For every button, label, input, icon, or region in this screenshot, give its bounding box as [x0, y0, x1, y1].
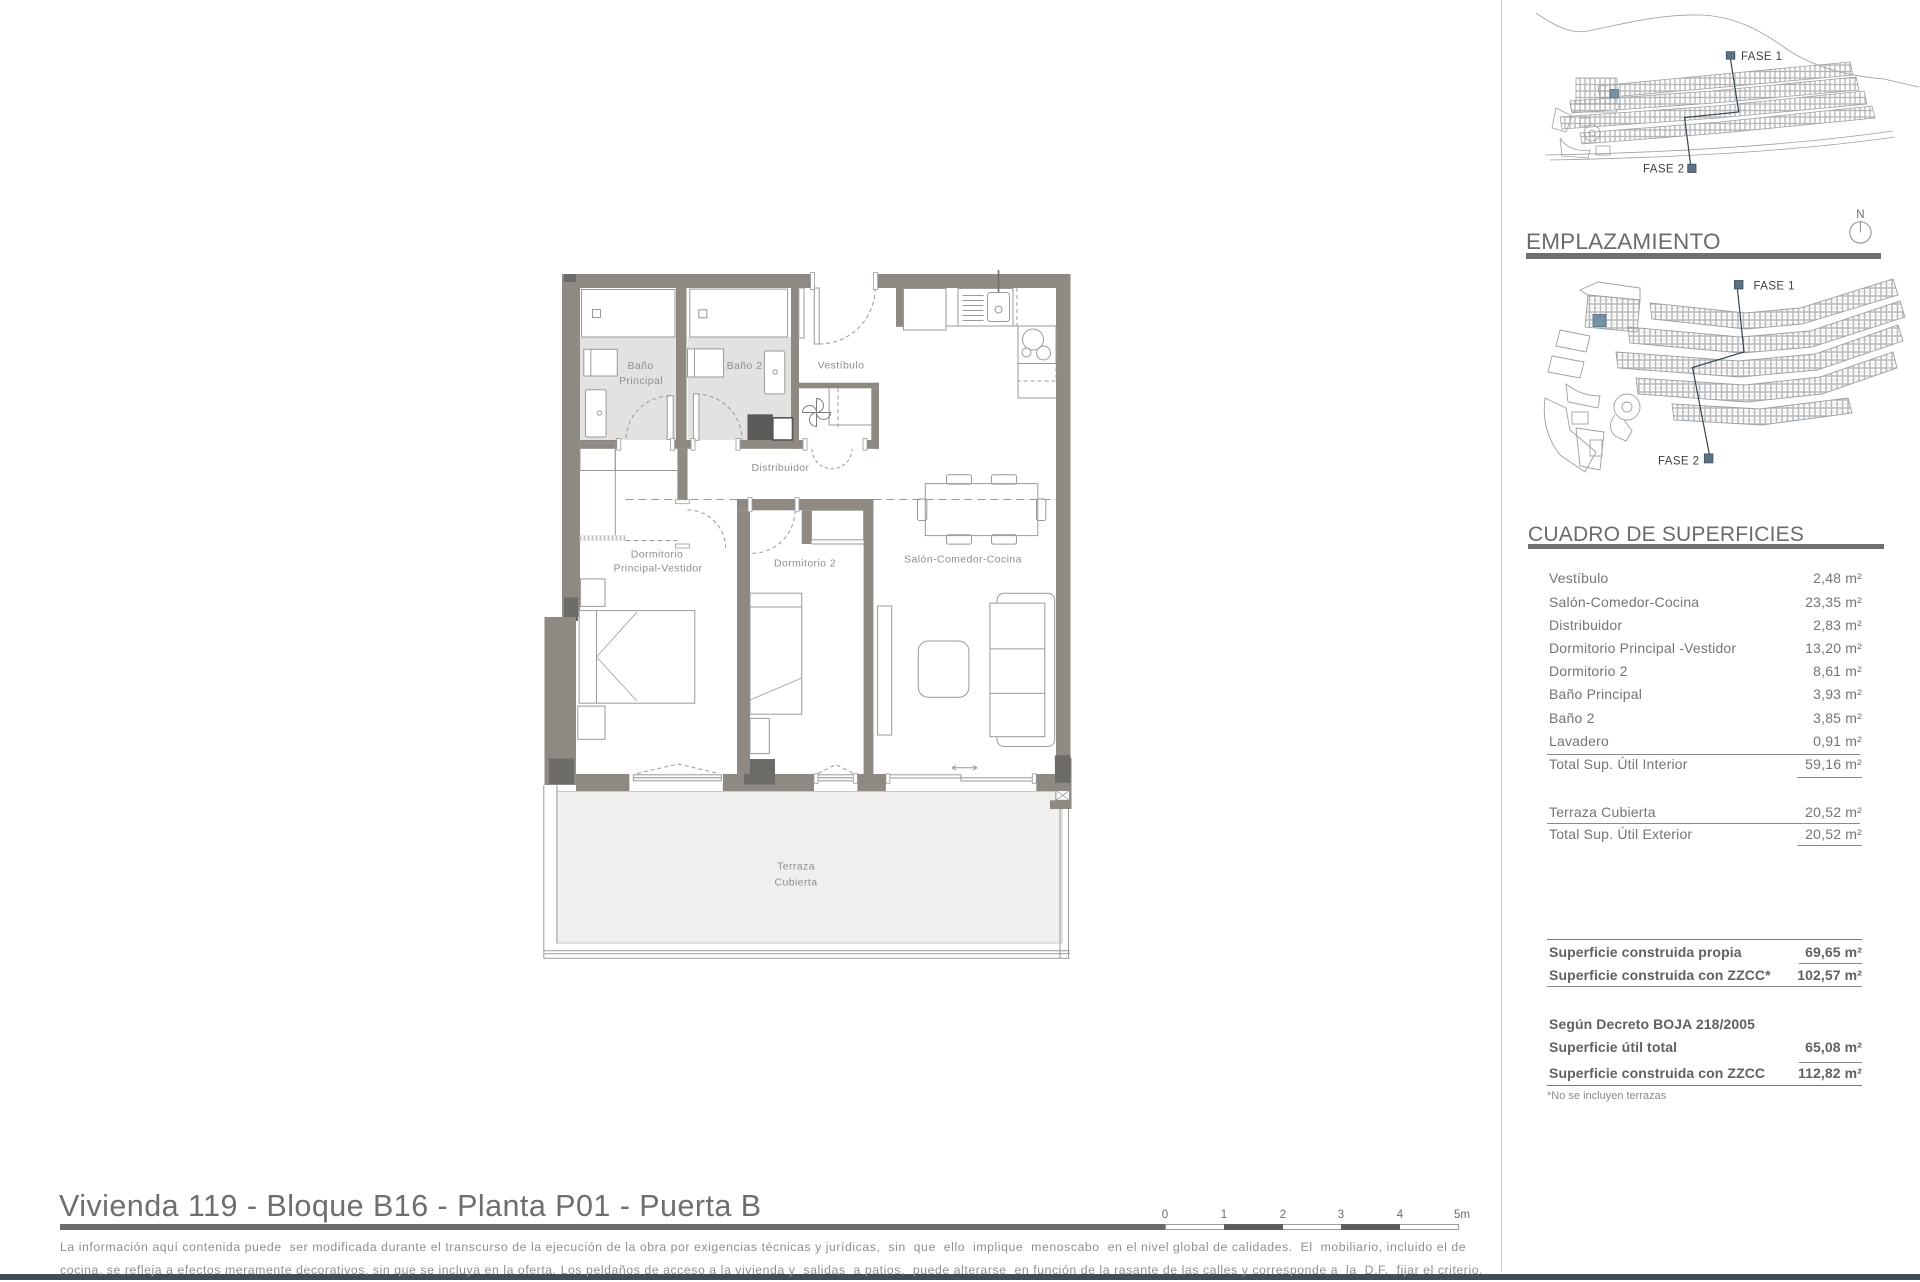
svg-text:Baño 2: Baño 2: [727, 360, 763, 372]
svg-text:Vestíbulo: Vestíbulo: [818, 360, 865, 372]
svg-text:Distribuidor: Distribuidor: [752, 462, 810, 474]
svg-text:Terraza: Terraza: [777, 861, 815, 873]
svg-text:FASE 2: FASE 2: [1658, 456, 1699, 468]
svg-text:Cubierta: Cubierta: [775, 877, 818, 889]
svg-text:FASE 1: FASE 1: [1754, 281, 1795, 293]
svg-text:Principal-Vestidor: Principal-Vestidor: [614, 563, 703, 575]
svg-text:N: N: [1856, 209, 1864, 221]
svg-text:Dormitorio: Dormitorio: [631, 549, 683, 561]
svg-text:Salón-Comedor-Cocina: Salón-Comedor-Cocina: [904, 554, 1022, 566]
svg-text:Baño: Baño: [627, 360, 653, 372]
svg-text:Dormitorio 2: Dormitorio 2: [774, 558, 836, 570]
svg-text:FASE 1: FASE 1: [1741, 51, 1782, 63]
svg-text:Principal: Principal: [619, 375, 663, 387]
svg-text:FASE 2: FASE 2: [1643, 164, 1684, 176]
